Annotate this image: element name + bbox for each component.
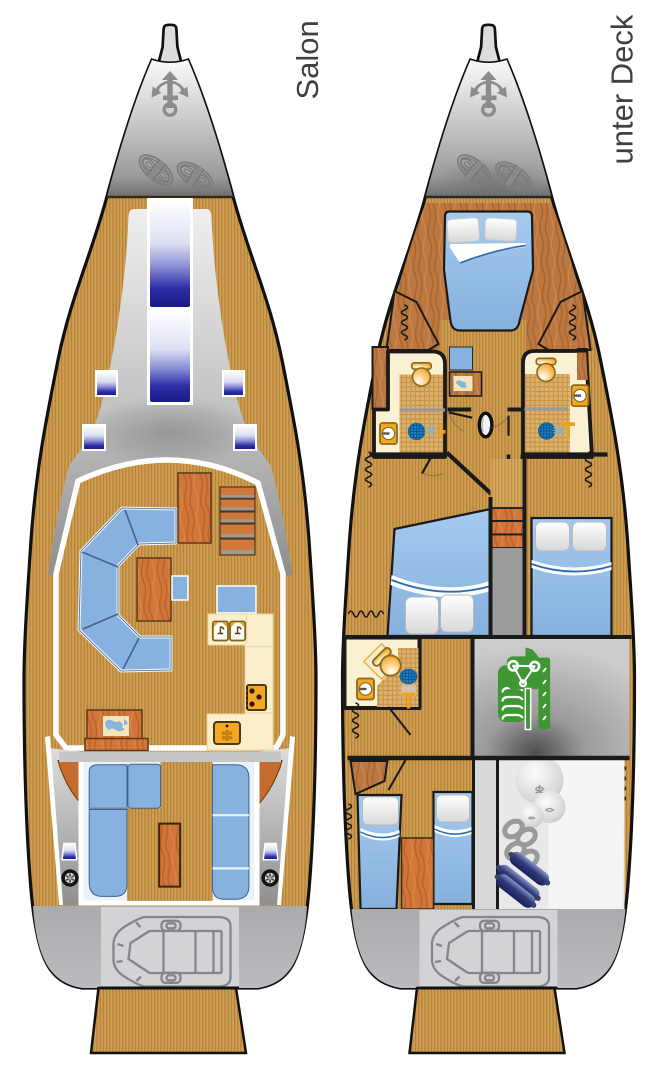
svg-text:unter Deck: unter Deck	[605, 14, 640, 164]
svg-text:Salon: Salon	[290, 20, 325, 99]
